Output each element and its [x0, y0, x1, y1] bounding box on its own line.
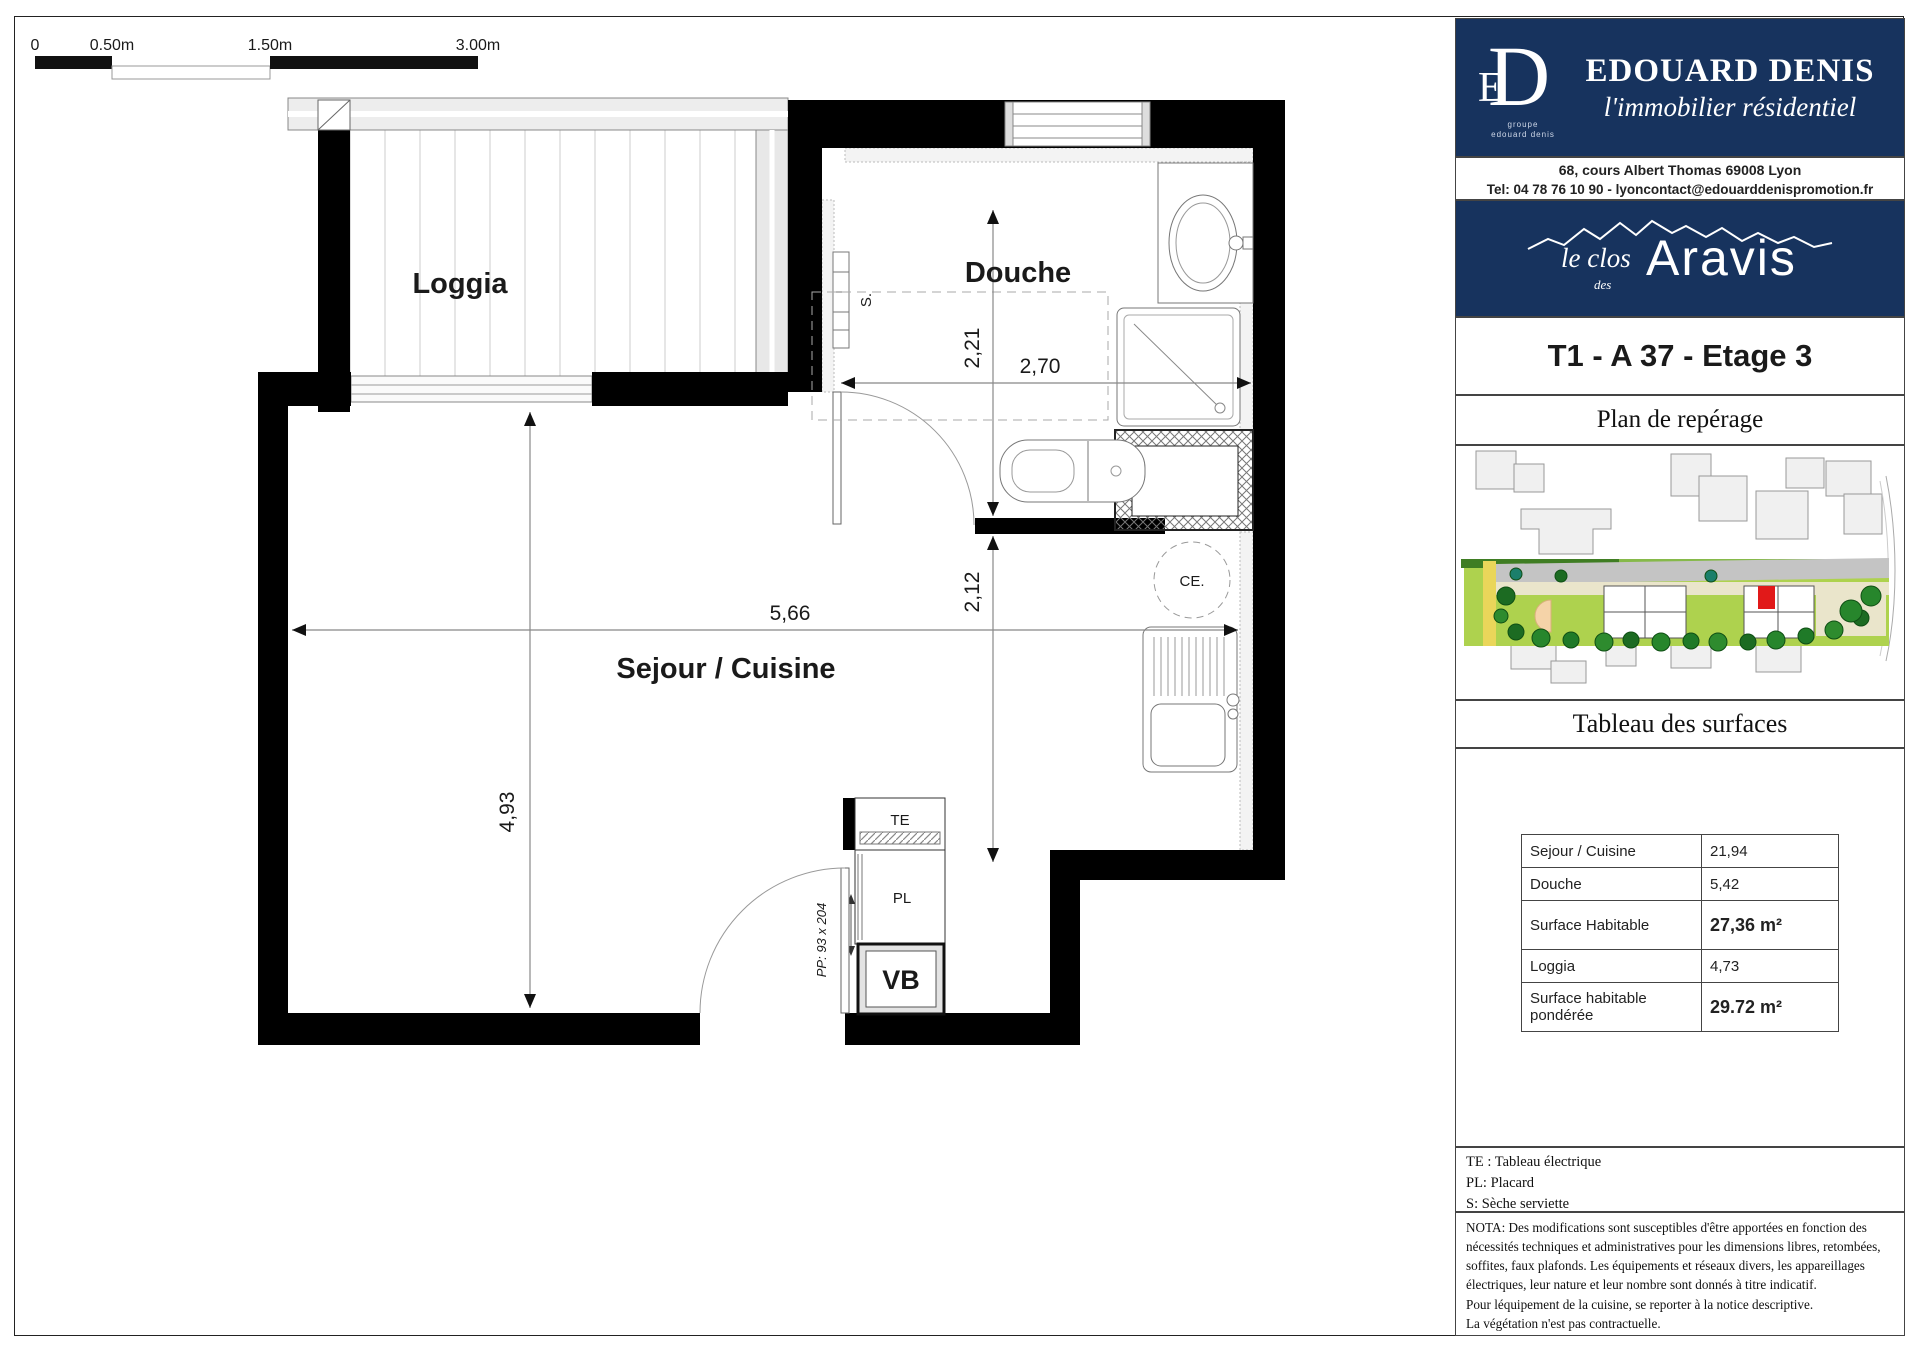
- brand-tagline: l'immobilier résidentiel: [1566, 92, 1894, 123]
- nota-line: nécessités techniques et administratives…: [1466, 1237, 1894, 1256]
- brand-header: D E groupe edouard denis EDOUARD DENIS l…: [1455, 18, 1905, 157]
- kitchen-sink: [1143, 627, 1239, 772]
- svg-text:0.50m: 0.50m: [90, 37, 134, 54]
- shower-tray: [1117, 308, 1240, 426]
- brand-monogram-icon: D E groupe edouard denis: [1474, 38, 1566, 138]
- table-row: Loggia 4,73: [1522, 950, 1839, 983]
- location-map: [1455, 445, 1905, 700]
- table-row: Sejour / Cuisine 21,94: [1522, 835, 1839, 868]
- svg-text:1.50m: 1.50m: [248, 37, 292, 54]
- legend-item: PL: Placard: [1466, 1173, 1894, 1194]
- towel-dryer-label: S.: [858, 293, 875, 307]
- bathroom-window: [1005, 102, 1150, 146]
- legend-item: TE : Tableau électrique: [1466, 1152, 1894, 1173]
- loggia-label: Loggia: [412, 268, 508, 300]
- scale-bar: 0 0.50m 1.50m 3.00m: [31, 37, 501, 79]
- brand-contact: Tel: 04 78 76 10 90 - lyoncontact@edouar…: [1456, 180, 1904, 200]
- brand-group-line2: edouard denis: [1468, 130, 1578, 140]
- dim-bath-depth: 2,21: [961, 328, 984, 369]
- brand-group-line1: groupe: [1468, 120, 1578, 130]
- nota-line: NOTA: Des modifications sont susceptible…: [1466, 1218, 1894, 1237]
- project-des: des: [1594, 277, 1611, 293]
- project-logo: le clos des Aravis: [1455, 200, 1905, 317]
- nota-line: Pour léquipement de la cuisine, se repor…: [1466, 1295, 1894, 1314]
- brand-address: 68, cours Albert Thomas 69008 Lyon: [1456, 160, 1904, 180]
- surfaces-table-panel: Sejour / Cuisine 21,94 Douche 5,42 Surfa…: [1455, 748, 1905, 1147]
- project-prefix: le clos: [1561, 243, 1631, 274]
- dim-living-depth: 4,93: [496, 792, 519, 833]
- site-plan-icon: [1456, 446, 1904, 699]
- nota-line: soffites, faux plafonds. Les équipements…: [1466, 1256, 1894, 1275]
- corner-symbol: [318, 100, 350, 130]
- floor-plan: 0 0.50m 1.50m 3.00m: [0, 0, 1455, 1350]
- electrical-panel-label: TE: [890, 812, 909, 829]
- nota-line: électriques, leur nature et leur nombre …: [1466, 1275, 1894, 1294]
- vb-label: VB: [882, 965, 920, 995]
- svg-text:0: 0: [31, 37, 40, 54]
- table-row: Douche 5,42: [1522, 868, 1839, 901]
- surfaces-table: Sejour / Cuisine 21,94 Douche 5,42 Surfa…: [1521, 834, 1839, 1032]
- dim-bath-width: 2,70: [1020, 355, 1061, 378]
- entry-door-label: PP: 93 x 204: [814, 903, 829, 977]
- dim-mid-depth: 2,12: [961, 572, 984, 613]
- water-heater-label: CE.: [1179, 573, 1204, 590]
- towel-dryer: [833, 252, 849, 348]
- loggia-parapet: [288, 98, 788, 130]
- brand-address-block: 68, cours Albert Thomas 69008 Lyon Tel: …: [1455, 157, 1905, 200]
- brand-name: EDOUARD DENIS: [1566, 53, 1894, 90]
- sejour-label: Sejour / Cuisine: [616, 653, 835, 685]
- dim-living-width: 5,66: [770, 602, 811, 625]
- map-title: Plan de repérage: [1455, 395, 1905, 445]
- svg-text:3.00m: 3.00m: [456, 37, 500, 54]
- nota-panel: NOTA: Des modifications sont susceptible…: [1455, 1212, 1905, 1336]
- soffit-dashed-zone: [812, 292, 1108, 420]
- closet-label: PL: [893, 890, 911, 907]
- table-row: Surface habitable pondérée 29.72 m²: [1522, 983, 1839, 1032]
- nota-line: La végétation n'est pas contractuelle.: [1466, 1314, 1894, 1333]
- table-row: Surface Habitable 27,36 m²: [1522, 901, 1839, 950]
- unit-title: T1 - A 37 - Etage 3: [1455, 317, 1905, 395]
- surfaces-title: Tableau des surfaces: [1455, 700, 1905, 748]
- bathroom-door: [833, 392, 974, 525]
- loggia-deck: [350, 130, 756, 376]
- toilet: [1000, 440, 1145, 502]
- washbasin: [1158, 163, 1253, 303]
- douche-label: Douche: [965, 257, 1071, 289]
- unit-marker: [1758, 586, 1775, 609]
- legend-panel: TE : Tableau électrique PL: Placard S: S…: [1455, 1147, 1905, 1212]
- project-name: Aravis: [1646, 229, 1797, 287]
